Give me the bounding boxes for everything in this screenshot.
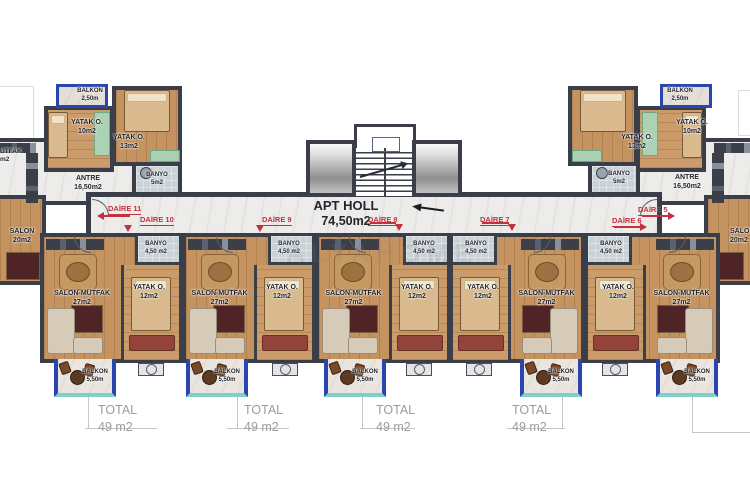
room-label: BALKON5,50m	[349, 369, 381, 385]
bedroom	[389, 265, 447, 360]
room-label: YATAK O.12m2	[589, 283, 647, 301]
room-label: YATAK O.13m2	[606, 133, 668, 151]
total-label: TOTAL49 m2	[244, 402, 283, 436]
sofa-icon	[189, 308, 217, 354]
room-label: BANYO5m2	[596, 171, 642, 187]
daire-arrow-icon	[97, 212, 104, 220]
ac-unit-icon	[602, 363, 628, 376]
daire-arrow-line	[614, 226, 640, 228]
daire-arrow-icon	[395, 224, 403, 231]
room-label: BANYO4,50 m2	[402, 241, 446, 257]
rug-icon	[458, 335, 504, 351]
daire-arrow-line	[642, 215, 668, 217]
room-label: BANYO5m2	[134, 172, 180, 188]
balcony: BALKON5,50m	[324, 359, 386, 397]
total-leader	[692, 397, 693, 432]
rug-icon	[572, 150, 602, 162]
daire-arrow-line	[482, 222, 509, 224]
daire-arrow-icon	[124, 225, 132, 232]
balcony: BALKON5,50m	[54, 359, 116, 397]
room-label: SALON-MUTFAK27m2	[512, 289, 581, 307]
daire-arrow-icon	[640, 223, 647, 231]
balcony-chair-icon	[328, 361, 342, 376]
ac-unit-icon	[272, 363, 298, 376]
room-label: YATAK O.12m2	[454, 283, 512, 301]
balcony: BALKON5,50m	[656, 359, 718, 397]
ac-unit-icon	[138, 363, 164, 376]
elevator-left	[306, 140, 356, 197]
sofa-icon	[685, 308, 713, 354]
door-arc	[669, 236, 686, 253]
apartment-unit-2: SALON-MUTFAK27m2 YATAK O.12m2 BANYO4,50 …	[182, 233, 315, 363]
rug-icon	[346, 305, 378, 333]
bed-icon	[580, 90, 626, 132]
room-label: BALKON5,50m	[79, 369, 111, 385]
room-label: BANYO4,50 m2	[134, 241, 178, 257]
total-label: TOTAL49 m2	[512, 402, 551, 436]
room-label: SALON-MUTFAK27m2	[319, 289, 388, 307]
total-leader	[562, 397, 563, 428]
daire-label: DAİRE 11	[108, 204, 141, 215]
room-label: SALON-MUTFAK27m2	[186, 289, 253, 307]
total-leader	[237, 397, 238, 428]
room-label: BANYO4,50 m2	[267, 241, 311, 257]
balcony-chair-icon	[524, 361, 538, 376]
daire-label: DAİRE 7	[480, 215, 510, 226]
bedroom	[254, 265, 312, 360]
rug-icon	[262, 335, 308, 351]
room-label: SALON20m2	[2, 227, 42, 245]
terrace-outline	[738, 90, 750, 136]
total-label: TOTAL49 m2	[376, 402, 415, 436]
ac-unit-icon	[406, 363, 432, 376]
apartment-unit-4: SALON-MUTFAK27m2 YATAK O.12m2 BANYO4,50 …	[450, 233, 585, 363]
room-label: BALKON5,50m	[545, 369, 577, 385]
total-label: TOTAL49 m2	[98, 402, 137, 436]
rug-icon	[593, 335, 639, 351]
room-label: YATAK O.12m2	[388, 283, 446, 301]
balcony-chair-icon	[190, 361, 204, 376]
total-leader	[88, 397, 89, 428]
door-arc	[74, 236, 91, 253]
balcony: BALKON5,50m	[186, 359, 248, 397]
daire-label: DAİRE 8	[368, 215, 398, 226]
rug-icon	[71, 305, 103, 333]
room-label: YATAK O.12m2	[120, 283, 178, 301]
rug-icon	[129, 335, 175, 351]
room-label: YATAK O.10m2	[660, 118, 724, 136]
dining-table-icon	[59, 254, 97, 290]
rug-icon	[397, 335, 443, 351]
room-label: ANTRE16,50m2	[56, 174, 120, 192]
daire-arrow-icon	[256, 225, 264, 232]
room-label: BALKON5,50m	[211, 369, 243, 385]
room-label-clipped: SALON20m2	[730, 227, 750, 245]
dining-table-icon	[528, 254, 566, 290]
staircase	[356, 148, 412, 197]
room-label: YATAK O.12m2	[253, 283, 311, 301]
door-arc	[349, 236, 366, 253]
dining-table-icon	[334, 254, 372, 290]
room-label: BALKON2,50m	[74, 88, 106, 104]
daire-arrow-icon	[668, 212, 675, 220]
total-leader	[362, 397, 363, 428]
dining-table-icon	[201, 254, 239, 290]
floor-plan: BALKON2,50m YATAK O.10m2 YATAK O.13m2 BA…	[0, 0, 750, 500]
rug-icon	[213, 305, 245, 333]
stair-landing-inner	[372, 137, 400, 152]
bedroom	[588, 265, 646, 360]
total-leader	[692, 432, 750, 433]
bedroom	[121, 265, 179, 360]
pillow-icon	[127, 93, 167, 102]
rug-icon	[6, 252, 40, 280]
kitchen-counter-icon	[714, 143, 750, 153]
sofa-icon	[47, 308, 75, 354]
room-label: BALKON2,50m	[664, 88, 696, 104]
room-label: SALON-MUTFAK27m2	[44, 289, 120, 307]
daire-label: DAİRE 9	[262, 215, 292, 226]
room-label: YATAK O.13m2	[98, 133, 160, 151]
apartment-unit-5: SALON-MUTFAK27m2 YATAK O.12m2 BANYO4,50 …	[585, 233, 720, 363]
room-label: SALON-MUTFAK27m2	[647, 289, 716, 307]
elevator-right	[412, 140, 462, 197]
pillow-icon	[583, 93, 623, 102]
room-label-clipped: UTFAKm2	[0, 148, 26, 165]
sofa-icon	[550, 308, 578, 354]
kitchen-counter-icon	[26, 153, 38, 203]
door-arc	[534, 236, 551, 253]
ac-unit-icon	[466, 363, 492, 376]
balcony-chair-icon	[58, 361, 72, 376]
daire-label: DAİRE 10	[140, 215, 174, 226]
apartment-unit-1: SALON-MUTFAK27m2 YATAK O.12m2 BANYO4,50 …	[40, 233, 182, 363]
room-label: BANYO4,50 m2	[589, 241, 633, 257]
room-label: BALKON5,50m	[681, 369, 713, 385]
bedroom	[453, 265, 511, 360]
sofa-icon	[322, 308, 350, 354]
dining-table-icon	[663, 254, 701, 290]
rug-icon	[150, 150, 180, 162]
room-label: ANTRE16,50m2	[654, 173, 720, 191]
daire-arrow-icon	[508, 224, 516, 231]
balcony-chair-icon	[660, 361, 674, 376]
daire-arrow-line	[104, 215, 130, 217]
door-arc	[216, 236, 233, 253]
bed-icon	[124, 90, 170, 132]
room-label: BANYO4,50 m2	[454, 241, 498, 257]
daire-arrow-line	[370, 222, 396, 224]
balcony: BALKON5,50m	[520, 359, 582, 397]
apartment-unit-3: SALON-MUTFAK27m2 YATAK O.12m2 BANYO4,50 …	[315, 233, 450, 363]
